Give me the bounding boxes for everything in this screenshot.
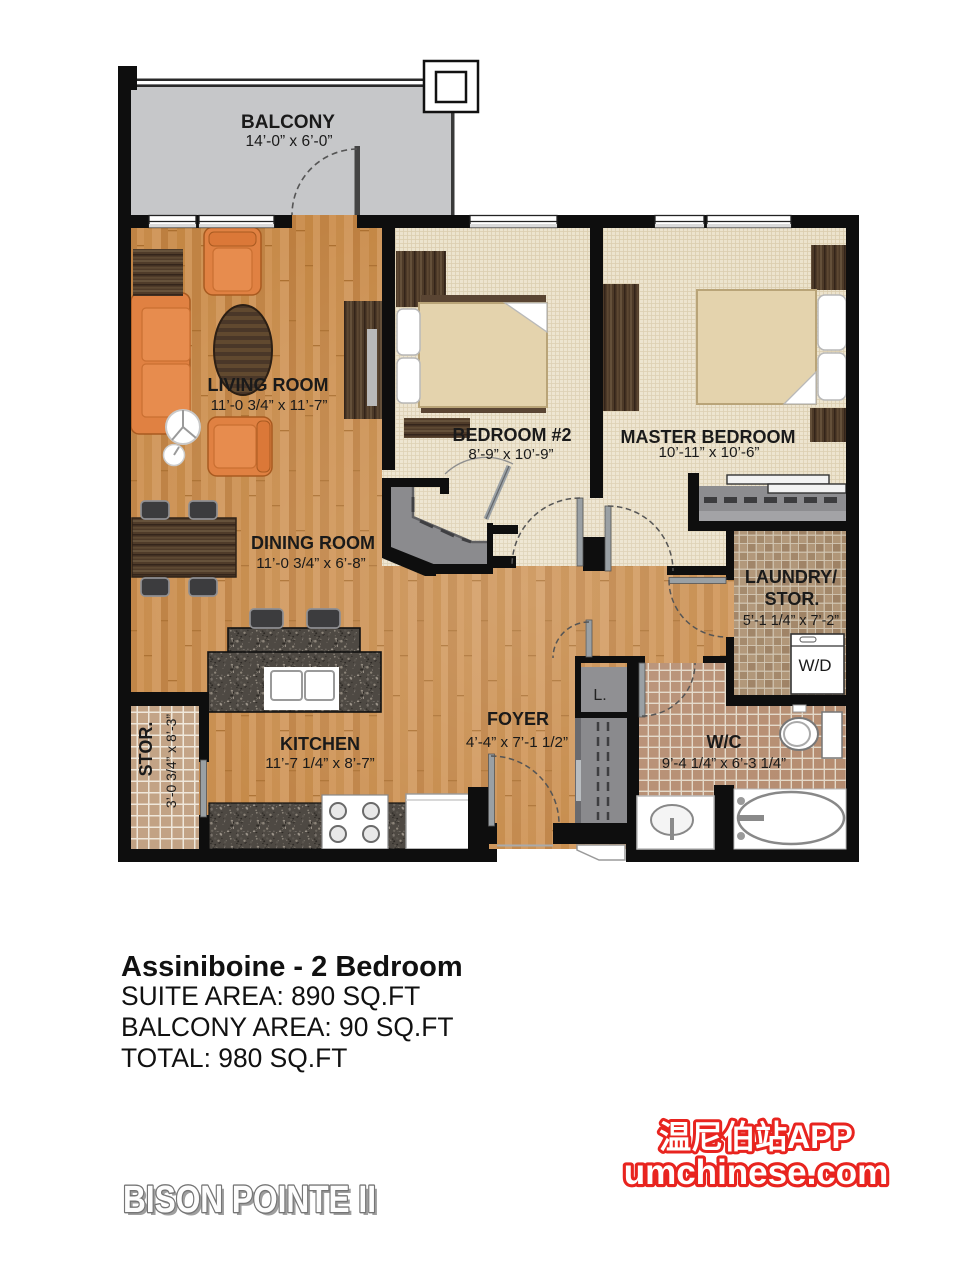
- svg-text:BISON POINTE II: BISON POINTE II: [123, 1179, 376, 1221]
- svg-text:LAUNDRY/: LAUNDRY/: [745, 567, 837, 587]
- svg-text:BEDROOM #2: BEDROOM #2: [452, 425, 571, 445]
- svg-text:STOR.: STOR.: [765, 589, 820, 609]
- svg-text:Assiniboine - 2 Bedroom: Assiniboine - 2 Bedroom: [121, 951, 463, 983]
- svg-text:KITCHEN: KITCHEN: [280, 734, 360, 754]
- svg-text:8’-9” x 10’-9”: 8’-9” x 10’-9”: [468, 446, 553, 463]
- svg-text:5’-1 1/4” x 7’-2”: 5’-1 1/4” x 7’-2”: [743, 613, 839, 629]
- svg-text:10’-11” x 10’-6”: 10’-11” x 10’-6”: [658, 444, 759, 461]
- svg-text:14’-0” x 6’-0”: 14’-0” x 6’-0”: [246, 133, 333, 150]
- svg-text:9’-4 1/4” x 6’-3 1/4”: 9’-4 1/4” x 6’-3 1/4”: [662, 756, 786, 772]
- svg-text:DINING ROOM: DINING ROOM: [251, 533, 375, 553]
- svg-text:STOR.: STOR.: [136, 722, 156, 777]
- svg-text:11’-0 3/4” x 6’-8”: 11’-0 3/4” x 6’-8”: [256, 555, 365, 572]
- svg-text:BALCONY AREA: 90 SQ.FT: BALCONY AREA: 90 SQ.FT: [121, 1012, 453, 1042]
- svg-text:3’-0 3/4” x 8’-3”: 3’-0 3/4” x 8’-3”: [163, 714, 179, 808]
- svg-text:L.: L.: [593, 687, 606, 704]
- svg-text:SUITE AREA: 890 SQ.FT: SUITE AREA: 890 SQ.FT: [121, 981, 420, 1011]
- svg-text:温尼伯站APP: 温尼伯站APP: [659, 1119, 853, 1155]
- svg-text:11’-0 3/4” x 11’-7”: 11’-0 3/4” x 11’-7”: [211, 397, 328, 414]
- svg-text:BALCONY: BALCONY: [241, 112, 335, 133]
- svg-text:11’-7 1/4” x 8’-7”: 11’-7 1/4” x 8’-7”: [265, 755, 374, 772]
- svg-text:TOTAL: 980 SQ.FT: TOTAL: 980 SQ.FT: [121, 1043, 347, 1073]
- svg-text:W/C: W/C: [707, 732, 742, 752]
- svg-text:LIVING ROOM: LIVING ROOM: [208, 375, 329, 395]
- svg-text:umchinese.com: umchinese.com: [624, 1153, 889, 1192]
- svg-text:W/D: W/D: [798, 656, 831, 675]
- svg-text:4’-4” x 7’-1 1/2”: 4’-4” x 7’-1 1/2”: [466, 734, 568, 751]
- svg-text:FOYER: FOYER: [487, 709, 549, 729]
